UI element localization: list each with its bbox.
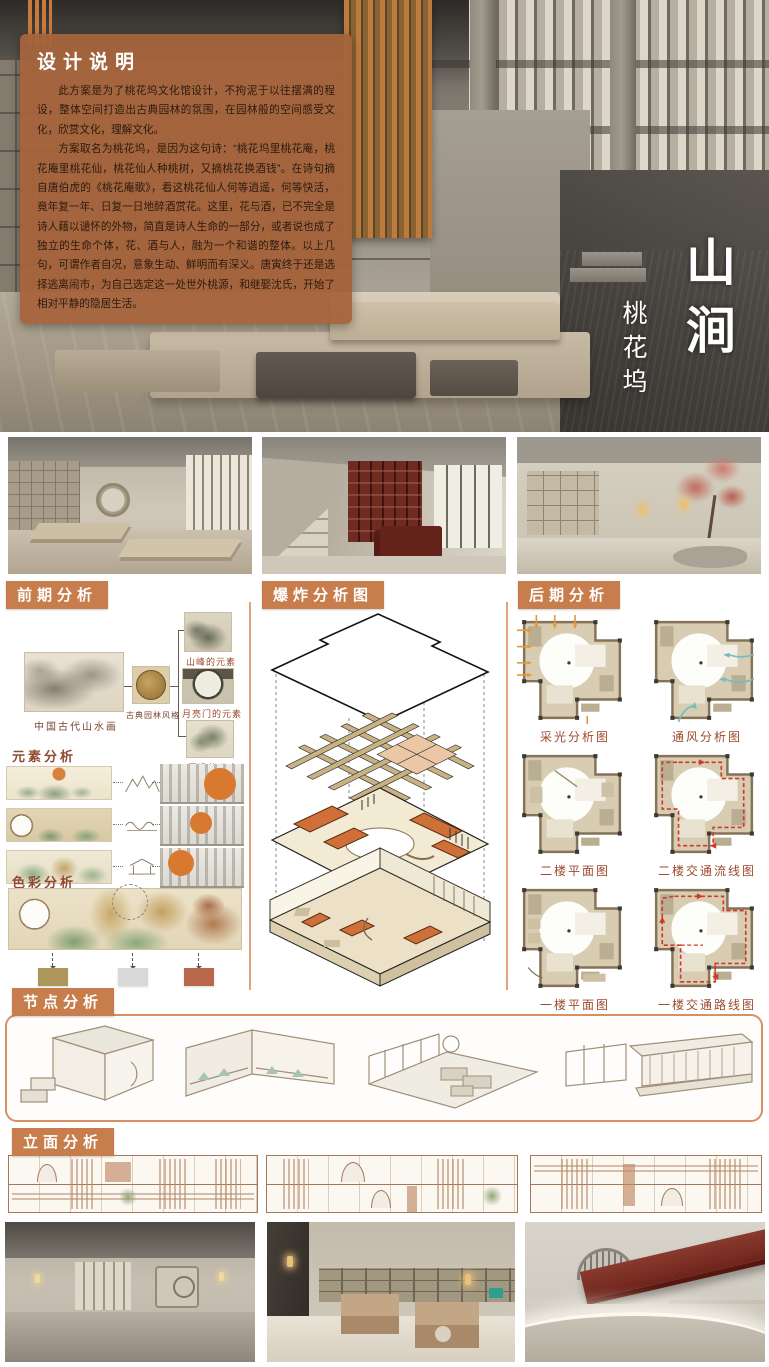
presentation-board: 设计说明 此方案是为了桃花坞文化馆设计，不拘泥于以往摆满的程设，整体空间打造出古…: [0, 0, 769, 1367]
element-row1-model: [160, 764, 244, 804]
reference-mountain-element: [184, 612, 232, 652]
b2-table: [415, 1302, 479, 1348]
caption-floor2-circulation: 二楼交通流线图: [648, 862, 766, 879]
render-thumb-red-lattice-room: [262, 437, 506, 574]
column-divider-right: [506, 602, 508, 990]
highlight-circle: [190, 812, 212, 834]
header-exploded-diagram: 爆炸分析图: [262, 581, 384, 609]
plan-daylight: 采光分析图: [516, 614, 634, 745]
t1-table: [29, 523, 131, 539]
caption-ventilation-plan: 通风分析图: [648, 728, 766, 745]
hero-step: [570, 268, 646, 282]
label-element-analysis: 元素分析: [12, 746, 76, 765]
elev-plant: [482, 1186, 502, 1206]
connector-line: [124, 686, 132, 687]
elev-hatch: [709, 1159, 743, 1209]
header-later-analysis: 后期分析: [518, 581, 620, 609]
b1-glossy-floor: [5, 1312, 255, 1362]
element-row1-painting: [6, 766, 112, 800]
design-brief-paragraph-1: 此方案是为了桃花坞文化馆设计，不拘泥于以往摆满的程设，整体空间打造出古典园林的氛…: [37, 82, 335, 140]
plan-floor1: 一楼平面图: [516, 882, 634, 1013]
swatch-arrow: [132, 953, 133, 966]
poster-subtitle-vertical: 桃花坞: [615, 300, 651, 402]
connector-bracket: [178, 630, 179, 736]
elevation-drawing-3: [530, 1155, 762, 1213]
reference-moongate-element: [182, 668, 234, 704]
elev-arch: [37, 1164, 57, 1182]
plan-floor1-circulation: 一楼交通路线图: [648, 882, 766, 1013]
reference-fan-painting: [132, 666, 170, 704]
header-node-analysis: 节点分析: [12, 988, 114, 1016]
elev-accent: [623, 1164, 635, 1206]
render-thumb-maple-garden: [517, 437, 761, 574]
caption-moongate-element: 月亮门的元素: [182, 707, 242, 720]
elev-hatch: [561, 1159, 589, 1209]
hero-step: [582, 252, 642, 266]
t3-stone: [673, 546, 747, 568]
t3-lantern: [681, 499, 687, 509]
design-brief-paragraph-2: 方案取名为桃花坞，是因为这句诗：“桃花坞里桃花庵，桃花庵里桃花仙，桃花仙人种桃树…: [37, 140, 335, 314]
element-row2-model: [160, 806, 244, 846]
elev-accent: [407, 1186, 417, 1212]
t1-moon-gate: [96, 483, 130, 517]
caption-landscape-painting: 中国古代山水画: [34, 718, 118, 733]
header-elevation-analysis: 立面分析: [12, 1128, 114, 1156]
b2-table: [341, 1294, 399, 1334]
b2-table-hole: [435, 1326, 451, 1342]
node-sketch-corner-room: [174, 1022, 344, 1114]
elev-arch: [371, 1190, 391, 1208]
caption-floor1-plan: 一楼平面图: [516, 996, 634, 1013]
color-swatch-khaki: [38, 968, 68, 986]
elev-hatch: [283, 1159, 309, 1209]
render-thumb-hall: [8, 437, 252, 574]
title-char-1: 山: [678, 236, 737, 304]
elev-accent: [105, 1162, 131, 1182]
t3-lantern: [639, 505, 645, 515]
t2-red-seat: [380, 526, 442, 558]
title-char-2: 涧: [678, 304, 737, 372]
element-row2-sketch: [124, 814, 160, 842]
b2-lantern: [287, 1256, 293, 1267]
element-row1-sketch: [124, 770, 160, 798]
elev-hatch: [437, 1159, 467, 1209]
elev-hatch: [71, 1159, 93, 1209]
column-divider-left: [249, 602, 251, 990]
t1-table: [118, 539, 241, 557]
dotted-connector: [113, 782, 123, 783]
poster-title-vertical: 山涧: [671, 236, 743, 372]
b1-lantern: [35, 1274, 40, 1283]
hero-side-table: [430, 360, 518, 396]
render-thumb-red-bridge-pool: [525, 1222, 765, 1362]
hero-sofa: [330, 292, 560, 340]
t2-shoji-window: [434, 465, 502, 548]
b1-lantern: [219, 1272, 224, 1281]
exploded-axonometric-diagram: [254, 608, 506, 988]
caption-garden-style: 古典园林风格: [126, 710, 180, 721]
fan-painting-circle: [136, 670, 166, 700]
connector-line: [178, 630, 184, 631]
render-thumb-glossy-hall: [5, 1222, 255, 1362]
plan-floor2-circulation: 二楼交通流线图: [648, 748, 766, 879]
hero-orange-slat-screen: [344, 0, 432, 238]
render-thumb-workshop: [267, 1222, 515, 1362]
swatch-arrow: [198, 953, 199, 966]
caption-mountain-element: 山峰的元素: [186, 655, 236, 668]
element-row2-painting: [6, 808, 112, 842]
elev-arch: [661, 1188, 683, 1206]
element-row3-model: [160, 848, 244, 888]
design-brief-title: 设计说明: [37, 47, 335, 74]
b1-ceiling: [5, 1222, 255, 1258]
plan-floor2: 二楼平面图: [516, 748, 634, 879]
dotted-connector: [113, 824, 123, 825]
elevation-drawing-2: [266, 1155, 518, 1213]
dotted-connector: [113, 866, 123, 867]
t3-maple-foliage: [659, 447, 755, 525]
node-sketch-platform: [355, 1022, 545, 1114]
plan-ventilation: 通风分析图: [648, 614, 766, 745]
swatch-arrow: [52, 953, 53, 966]
connector-line: [178, 736, 186, 737]
elev-hatch: [159, 1159, 189, 1209]
t2-floor: [262, 556, 506, 574]
header-early-analysis: 前期分析: [6, 581, 108, 609]
elev-arch: [341, 1162, 365, 1182]
reference-eaves-element: [186, 720, 234, 758]
connector-line: [170, 686, 178, 687]
b1-screen: [75, 1262, 131, 1310]
b2-teal-box: [489, 1288, 503, 1298]
caption-floor1-circulation: 一楼交通路线图: [648, 996, 766, 1013]
hero-render: 设计说明 此方案是为了桃花坞文化馆设计，不拘泥于以往摆满的程设，整体空间打造出古…: [0, 0, 769, 432]
hero-bench: [55, 350, 220, 392]
elevation-drawing-1: [8, 1155, 258, 1213]
color-swatch-grey: [118, 968, 148, 986]
caption-floor2-plan: 二楼平面图: [516, 862, 634, 879]
highlight-circle: [168, 850, 194, 876]
node-analysis-box: [5, 1014, 763, 1122]
highlight-circle: [204, 768, 236, 800]
element-row3-sketch: [124, 854, 160, 882]
elev-hatch: [215, 1159, 241, 1209]
reference-landscape-painting: [24, 652, 124, 712]
b2-lantern: [465, 1274, 471, 1285]
hero-low-table: [256, 352, 416, 398]
elev-plant: [119, 1188, 137, 1206]
node-sketch-corridor: [556, 1022, 756, 1114]
b1-moon-window: [173, 1276, 195, 1298]
color-swatch-terracotta: [184, 968, 214, 986]
dashed-focus-circle: [112, 884, 148, 920]
design-brief-panel: 设计说明 此方案是为了桃花坞文化馆设计，不拘泥于以往摆满的程设，整体空间打造出古…: [20, 34, 352, 324]
t3-shelf-screen: [527, 471, 599, 535]
node-sketch-pavilion: [13, 1022, 163, 1114]
caption-daylight-plan: 采光分析图: [516, 728, 634, 745]
